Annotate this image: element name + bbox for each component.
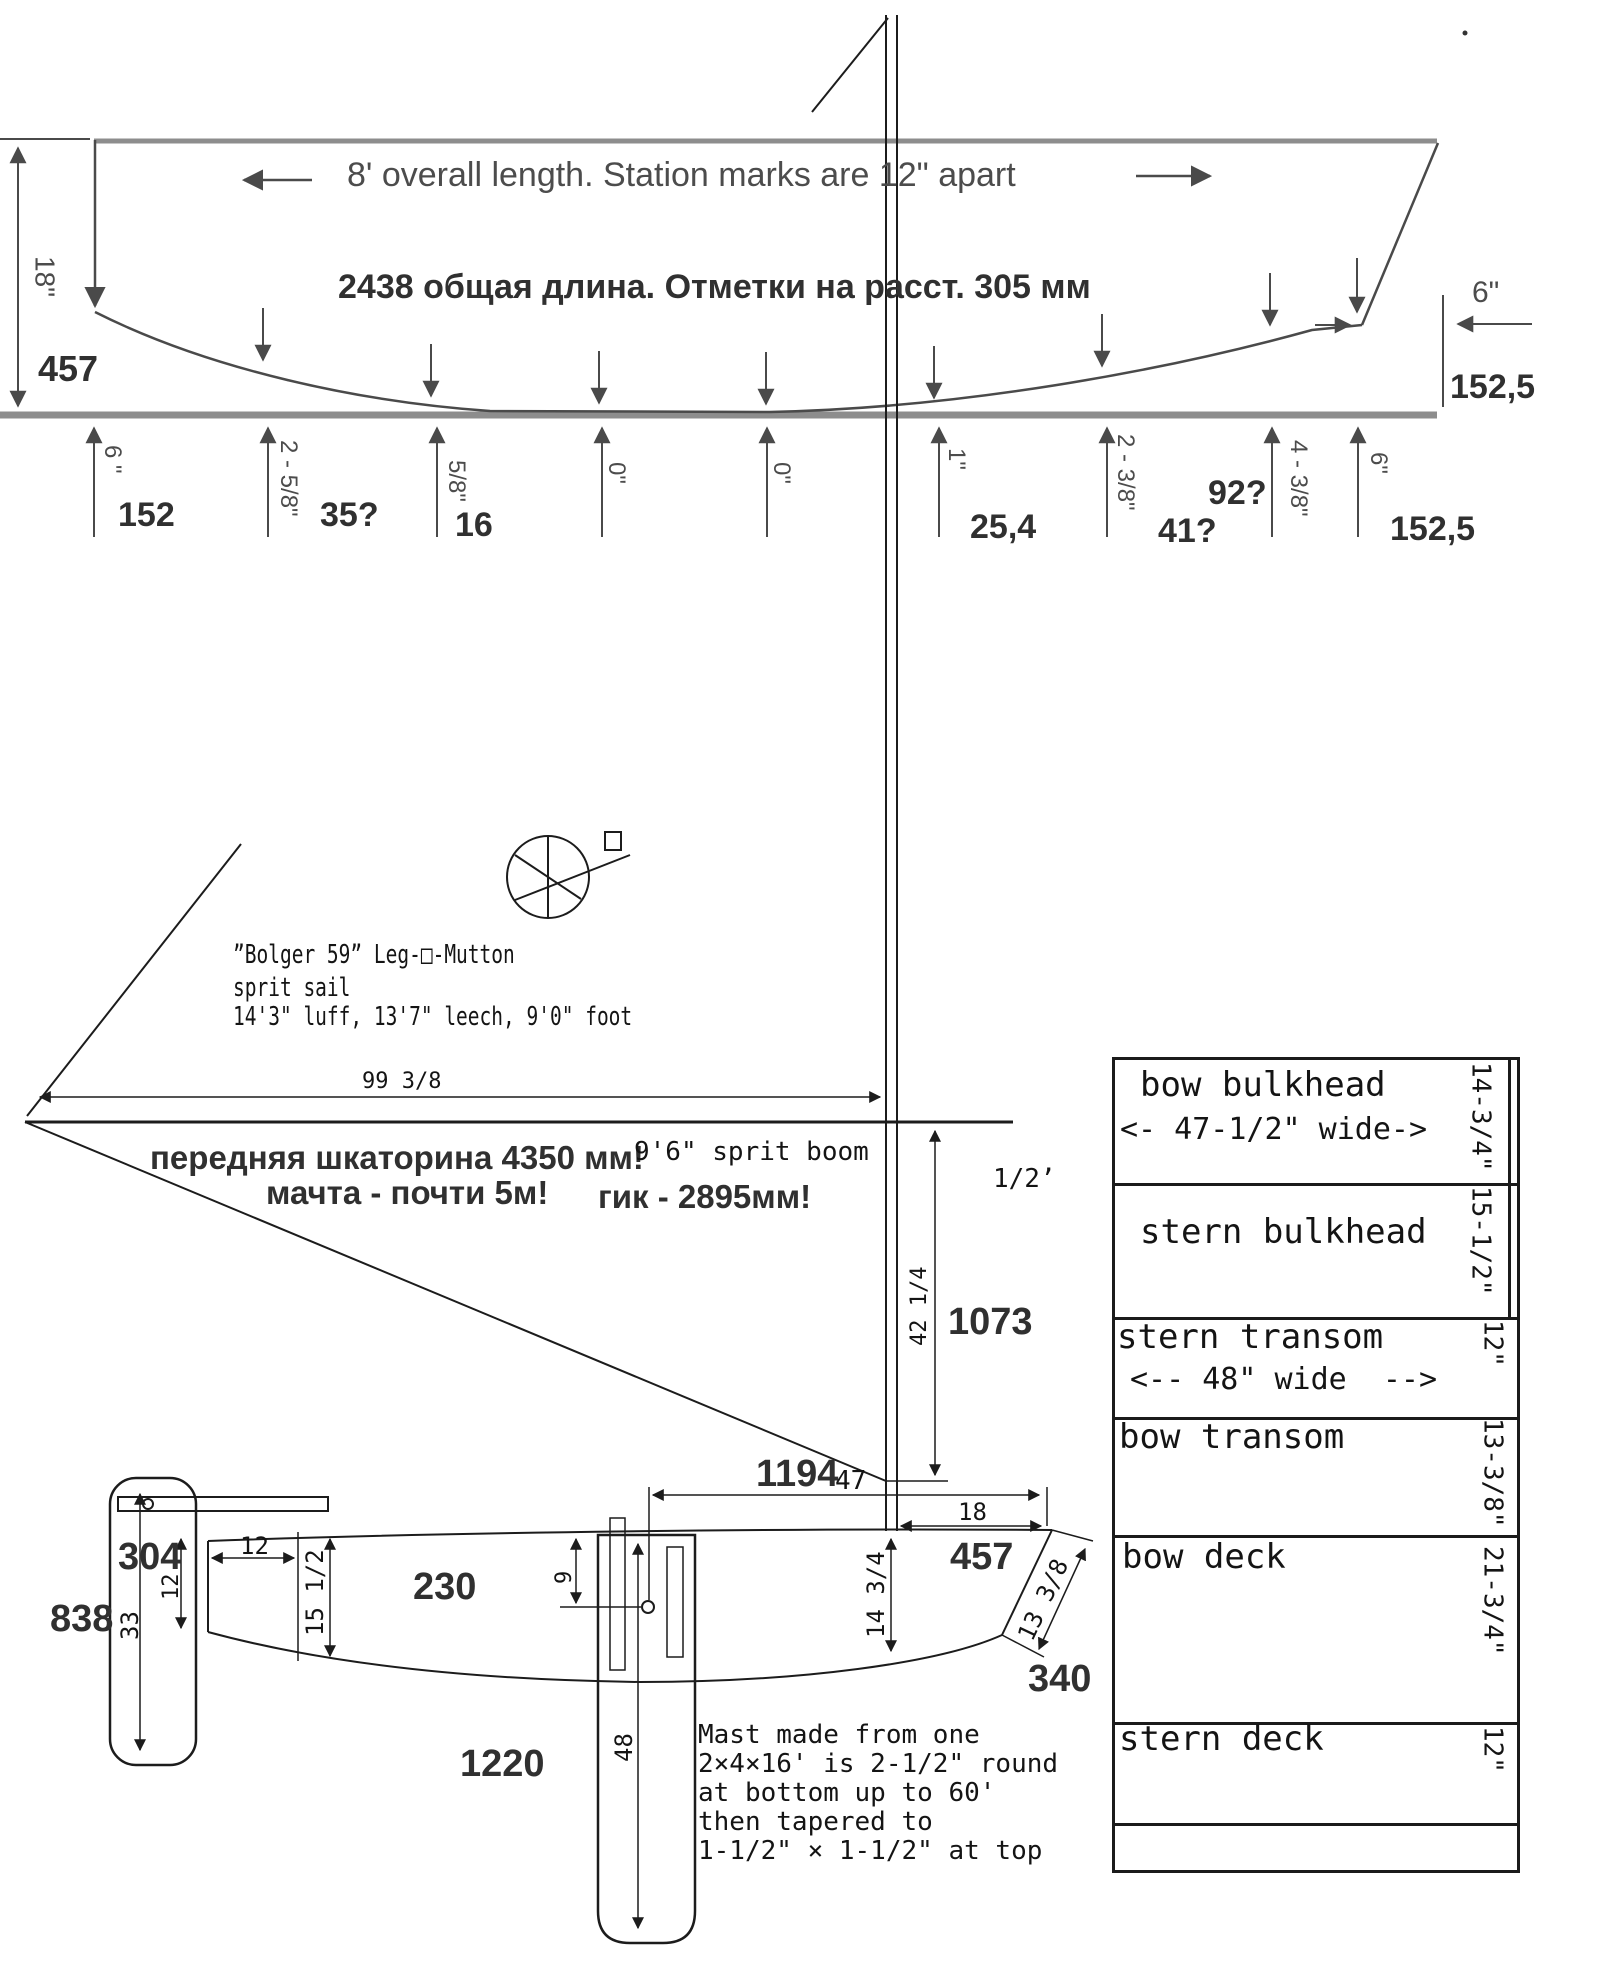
overall-length-note-ru: 2438 общая длина. Отметки на расст. 305 … (338, 270, 1091, 306)
dim-47: 47 (835, 1468, 866, 1495)
dim-1194: 1194 (756, 1455, 838, 1495)
height-dim-mm: 457 (38, 350, 98, 388)
station-offset-in-7: 4 - 3/8" (1286, 440, 1311, 517)
station-offset-mm-6: 41? (1158, 514, 1217, 550)
sail-dimensions-line: 14'3" luff, 13'7" leech, 9'0" foot (233, 1004, 632, 1031)
hull-bottom (208, 1632, 1002, 1682)
table-row-5-label: stern deck (1119, 1722, 1324, 1758)
station-offset-in-8: 6" (1366, 452, 1391, 474)
mast-step (610, 1518, 625, 1670)
station-offset-mm-7: 92? (1208, 476, 1267, 512)
sprit-boom-label: 9'6" sprit boom (634, 1139, 869, 1166)
table-row-0-dimension: 14-3/4" (1466, 1062, 1493, 1172)
dim-838: 838 (50, 1600, 113, 1640)
table-row-4-dimension: 21-3/4" (1478, 1546, 1505, 1656)
station-offset-mm-5: 25,4 (970, 510, 1036, 546)
dim-12-h: 12 (240, 1534, 269, 1559)
table-row-0-width-note: <- 47-1/2" wide-> (1120, 1114, 1427, 1146)
table-row-3-label: bow transom (1119, 1420, 1344, 1456)
station-offset-mm-8: 152,5 (1390, 512, 1475, 548)
dim-33: 33 (118, 1611, 143, 1640)
boom-note-ru: гик - 2895мм! (598, 1180, 811, 1215)
dim-42-14: 42 1/4 (908, 1267, 931, 1346)
station-offset-in-5: 1" (944, 448, 969, 470)
table-row-1-label: stern bulkhead (1140, 1215, 1427, 1251)
dim-18: 18 (958, 1500, 987, 1525)
bow-transom-line (1362, 143, 1438, 325)
boat-plan-sheet: 8' overall length. Station marks are 12"… (0, 0, 1600, 1978)
mast-note-line-0: Mast made from one (698, 1722, 980, 1749)
station-offset-mm-0: 152 (118, 498, 175, 534)
leech-top-segment (812, 18, 888, 112)
table-row-5-dimension: 12" (1478, 1726, 1505, 1773)
station-offset-in-3: 0" (604, 462, 629, 484)
bow-dim-inches: 6" (1472, 277, 1499, 309)
mast-note-line-1: 2×4×16' is 2-1/2" round (698, 1751, 1058, 1778)
dim-304: 304 (118, 1538, 181, 1578)
mast-note-line-3: then tapered to (698, 1809, 933, 1836)
station-offset-in-4: 0" (769, 462, 794, 484)
leech-bottom-segment (27, 844, 241, 1116)
sail-subtitle: sprit sail (233, 975, 350, 1002)
mast-note-line-4: 1-1/2" × 1-1/2" at top (698, 1838, 1042, 1865)
station-offset-in-2: 5/8" (444, 460, 469, 502)
sail-title: ”Bolger 59” Leg-□-Mutton (233, 942, 515, 969)
dim-1220: 1220 (460, 1745, 545, 1785)
table-row-2-width-note: <-- 48" wide --> (1130, 1364, 1437, 1396)
table-row-0-label: bow bulkhead (1140, 1068, 1386, 1104)
bow-dim-mm: 152,5 (1450, 370, 1535, 406)
station-offset-in-6: 2 - 3/8" (1113, 434, 1138, 511)
dim-12-v: 12 (160, 1574, 183, 1601)
height-dim-inches: 18" (30, 256, 59, 297)
rocker-curve (95, 312, 1362, 412)
dim-14-34: 14 3/4 (864, 1551, 889, 1638)
dim-9: 9 (553, 1571, 576, 1584)
luff-note-ru: передняя шкаторина 4350 мм! (150, 1141, 644, 1176)
mast-note-line-2: at bottom up to 60' (698, 1780, 995, 1807)
dim-15-12: 15 1/2 (303, 1549, 328, 1636)
dim-230: 230 (413, 1568, 476, 1608)
dim-1073: 1073 (948, 1303, 1033, 1343)
table-row-1-dimension: 15-1/2" (1466, 1186, 1493, 1296)
mast-note-ru: мачта - почти 5м! (266, 1176, 548, 1211)
dim-48: 48 (612, 1733, 637, 1762)
table-row-2-dimension: 12" (1478, 1320, 1505, 1367)
square-symbol (605, 832, 621, 850)
station-offset-mm-2: 16 (455, 508, 493, 544)
table-row-3-dimension: 13-3/8" (1478, 1418, 1505, 1528)
table-row-4-label: bow deck (1122, 1540, 1286, 1576)
dim-457: 457 (950, 1538, 1013, 1578)
station-offset-in-0: 6 " (100, 445, 125, 474)
overall-length-note: 8' overall length. Station marks are 12"… (347, 158, 1016, 194)
station-offset-in-1: 2 - 5/8" (276, 440, 301, 517)
dim-99-38: 99 3/8 (362, 1070, 441, 1093)
dim-half: 1/2’ (993, 1166, 1056, 1193)
dim-340: 340 (1028, 1660, 1091, 1700)
station-offset-mm-1: 35? (320, 498, 379, 534)
daggerboard-slot (667, 1547, 683, 1657)
table-row-2-label: stern transom (1117, 1320, 1383, 1356)
